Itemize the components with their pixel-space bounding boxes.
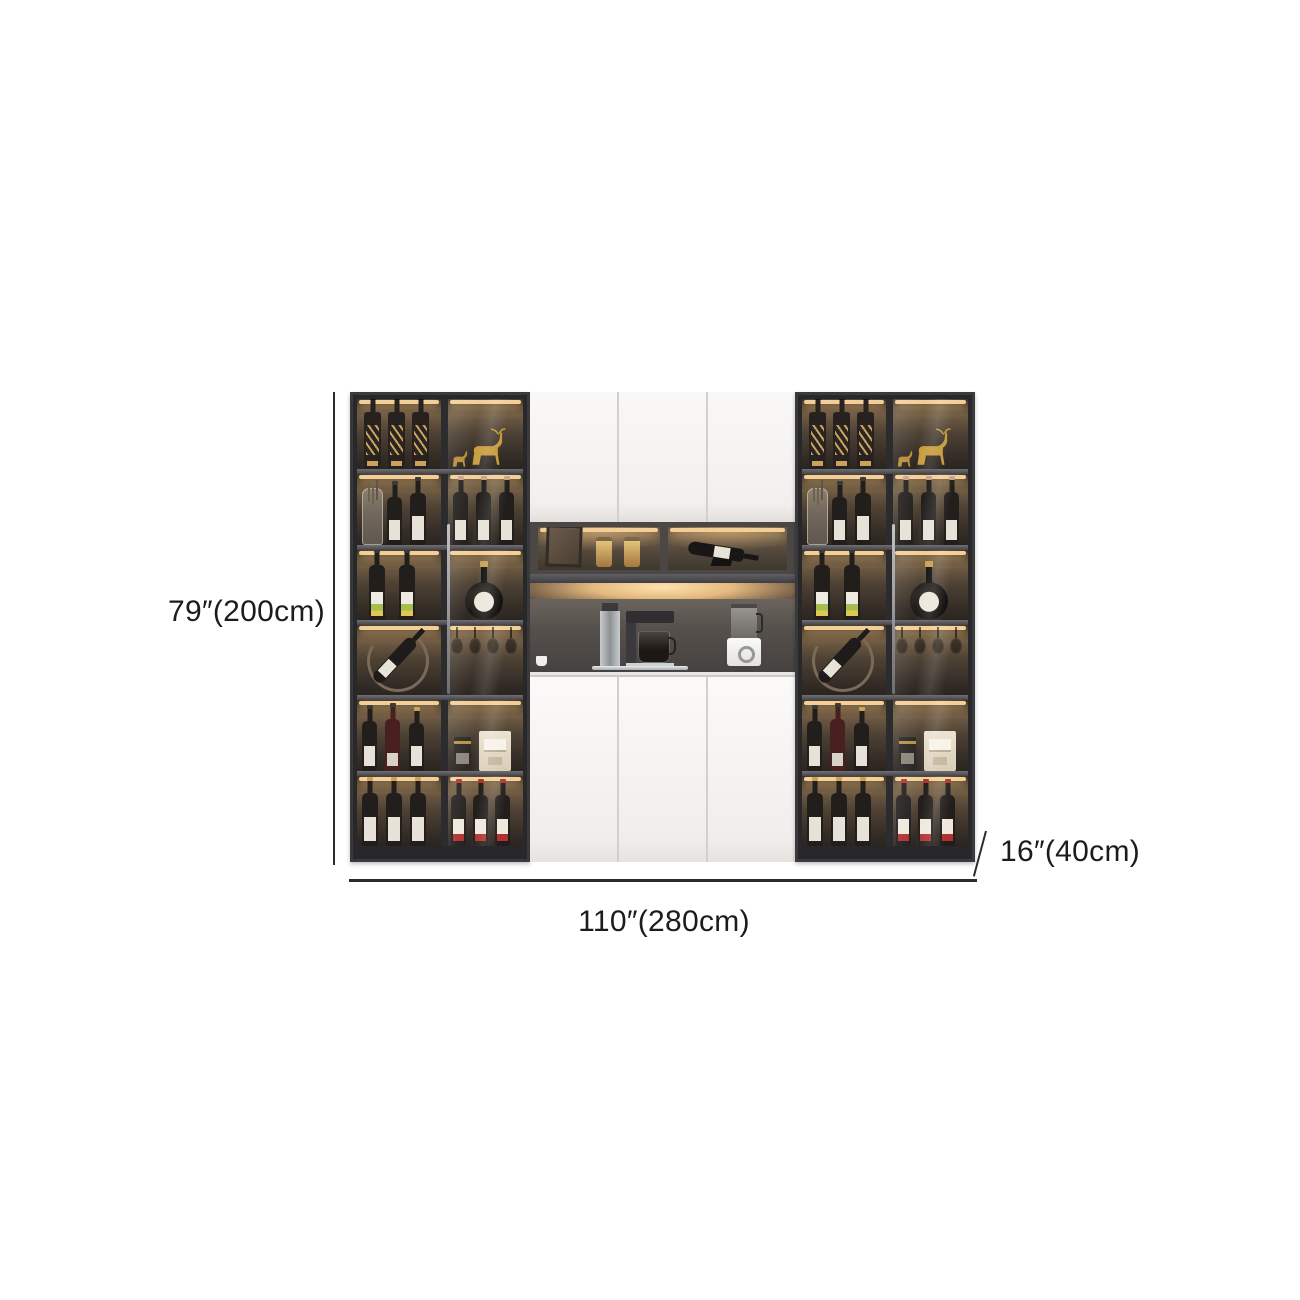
- upper-cabinet-doors: [530, 392, 795, 522]
- shelf-compartment: [802, 550, 886, 620]
- deer-figurine: [464, 426, 508, 468]
- glass-door-compartment: [893, 474, 968, 544]
- shelf-row-5: [357, 700, 523, 770]
- led-strip: [804, 551, 884, 555]
- wine-glass: [913, 627, 927, 657]
- wine-rack: [360, 625, 436, 695]
- wine-bottle: [831, 793, 847, 846]
- wine-bottle: [918, 795, 933, 846]
- unit-divider: [886, 776, 893, 846]
- shelf-row-3: [357, 550, 523, 620]
- unit-divider: [886, 700, 893, 770]
- wine-bottle: [940, 795, 955, 846]
- picture-frame: [545, 527, 582, 568]
- open-shelf-niche: [530, 522, 795, 583]
- product-dimension-image: 79″(200cm) 110″(280cm) 16″(40cm): [0, 0, 1300, 1300]
- wine-glass: [931, 627, 945, 657]
- storage-jar: [596, 537, 612, 567]
- glass-door-handle: [447, 524, 450, 694]
- wine-bottle: [830, 719, 845, 771]
- shelf-row-6: [357, 776, 523, 846]
- glass-door-compartment: [448, 550, 523, 620]
- wine-bottle: [362, 721, 377, 771]
- wine-bottle: [855, 793, 871, 846]
- shelf-row-1: [357, 399, 523, 469]
- storage-jar: [624, 537, 640, 567]
- coffee-carafe: [638, 631, 670, 663]
- wine-bottle: [807, 793, 823, 846]
- appliance-tray: [592, 666, 688, 670]
- unit-divider: [441, 399, 448, 469]
- glass-door-compartment: [448, 399, 523, 469]
- wine-bottle: [451, 795, 466, 846]
- unit-divider: [441, 700, 448, 770]
- niche-compartment-right: [668, 527, 787, 570]
- wine-bottle: [473, 795, 488, 846]
- coffee-machine: [626, 611, 674, 666]
- champagne-bottle: [921, 492, 936, 545]
- whisky-bottle: [364, 412, 381, 469]
- shelf-row-1: [802, 399, 968, 469]
- champagne-bottle: [476, 492, 491, 545]
- counter-niche: [530, 599, 795, 675]
- door-gap: [706, 392, 708, 522]
- deer-figurine-small: [895, 449, 915, 468]
- shelf-compartment: [357, 700, 441, 770]
- wine-bottle: [832, 497, 847, 545]
- shelf-compartment: [357, 474, 441, 544]
- wine-glass: [468, 627, 482, 657]
- wine-bottle: [807, 721, 822, 771]
- wine-glass: [450, 627, 464, 657]
- storage-canister: [454, 737, 471, 771]
- shelf-row-4: [357, 625, 523, 695]
- glass-door-compartment: [893, 625, 968, 695]
- champagne-bottle: [944, 492, 959, 545]
- shelf-row-6: [802, 776, 968, 846]
- shelf-compartment: [357, 550, 441, 620]
- shelf-row-3: [802, 550, 968, 620]
- led-strip: [450, 551, 521, 555]
- led-light-strip: [530, 583, 795, 599]
- shelf-compartment: [802, 625, 886, 695]
- wine-bottle: [371, 636, 419, 686]
- coffee-grinder: [600, 611, 620, 666]
- glass-door-compartment: [893, 399, 968, 469]
- gift-box: [924, 731, 956, 771]
- shelf-compartment: [357, 625, 441, 695]
- unit-divider: [441, 776, 448, 846]
- wine-bottle: [385, 719, 400, 771]
- wine-glass: [504, 627, 518, 657]
- unit-shelving: [802, 399, 968, 846]
- glass-door-compartment: [893, 776, 968, 846]
- wine-bottle: [410, 493, 426, 545]
- niche-compartment-left: [538, 527, 660, 570]
- liqueur-flask: [910, 582, 948, 620]
- wine-bottle: [410, 793, 426, 846]
- side-display-unit-right: [795, 392, 975, 862]
- shelf-row-2: [357, 474, 523, 544]
- unit-divider: [886, 399, 893, 469]
- center-unit: [530, 392, 795, 862]
- wine-glass: [486, 627, 500, 657]
- depth-dimension-label: 16″(40cm): [1000, 835, 1140, 869]
- glass-decanter: [807, 488, 828, 545]
- champagne-bottle: [453, 492, 468, 545]
- led-strip: [450, 400, 521, 404]
- height-dimension-line: [333, 392, 335, 865]
- shelf-board: [530, 574, 795, 583]
- shelf-row-2: [802, 474, 968, 544]
- glass-door-compartment: [448, 700, 523, 770]
- led-strip: [359, 475, 439, 479]
- glass-door-compartment: [893, 700, 968, 770]
- wine-bottle: [896, 795, 911, 846]
- wine-bottle: [854, 723, 869, 771]
- whisky-bottle: [388, 412, 405, 469]
- wine-bottle: [362, 793, 378, 846]
- led-strip: [895, 400, 966, 404]
- height-dimension-label: 79″(200cm): [30, 595, 325, 629]
- champagne-bottle: [499, 492, 514, 545]
- door-gap: [706, 677, 708, 862]
- wine-bottle: [495, 795, 510, 846]
- deer-figurine: [909, 426, 953, 468]
- gift-box: [479, 731, 511, 771]
- deer-figurine-small: [450, 449, 470, 468]
- shelf-compartment: [357, 399, 441, 469]
- led-strip: [804, 475, 884, 479]
- shelf-compartment: [802, 474, 886, 544]
- glass-door-compartment: [448, 625, 523, 695]
- spirit-bottle: [399, 565, 415, 620]
- storage-canister: [899, 737, 916, 771]
- led-strip: [670, 528, 785, 532]
- width-dimension-label: 110″(280cm): [350, 905, 978, 939]
- glass-door-compartment: [893, 550, 968, 620]
- liqueur-flask: [465, 582, 503, 620]
- champagne-bottle: [898, 492, 913, 545]
- whisky-bottle: [833, 412, 850, 469]
- whisky-bottle: [809, 412, 826, 469]
- shelf-row-5: [802, 700, 968, 770]
- door-gap: [617, 677, 619, 862]
- wine-glass: [949, 627, 963, 657]
- cup: [536, 656, 547, 666]
- led-strip: [895, 551, 966, 555]
- spirit-bottle: [844, 565, 860, 620]
- wine-rack: [805, 625, 881, 695]
- side-display-unit-left: [350, 392, 530, 862]
- wine-bottle: [816, 636, 864, 686]
- door-gap: [617, 392, 619, 522]
- shelf-row-4: [802, 625, 968, 695]
- shelf-compartment: [802, 700, 886, 770]
- spirit-bottle: [814, 565, 830, 620]
- lower-cabinet-doors: [530, 675, 795, 862]
- wine-bar-cabinet: [350, 392, 975, 862]
- glass-door-compartment: [448, 474, 523, 544]
- wine-bottle: [386, 793, 402, 846]
- glass-decanter: [362, 488, 383, 545]
- whisky-bottle: [412, 412, 429, 469]
- blender: [726, 604, 764, 666]
- glass-door-compartment: [448, 776, 523, 846]
- shelf-compartment: [802, 399, 886, 469]
- glass-door-handle: [892, 524, 895, 694]
- shelf-compartment: [357, 776, 441, 846]
- wine-bottle: [409, 723, 424, 771]
- led-strip: [359, 551, 439, 555]
- led-strip: [450, 701, 521, 705]
- unit-shelving: [357, 399, 523, 846]
- width-dimension-line: [349, 879, 977, 882]
- wine-bottle: [387, 497, 402, 545]
- whisky-bottle: [857, 412, 874, 469]
- wine-bottle: [855, 493, 871, 545]
- shelf-compartment: [802, 776, 886, 846]
- led-strip: [895, 701, 966, 705]
- wine-glass: [895, 627, 909, 657]
- spirit-bottle: [369, 565, 385, 620]
